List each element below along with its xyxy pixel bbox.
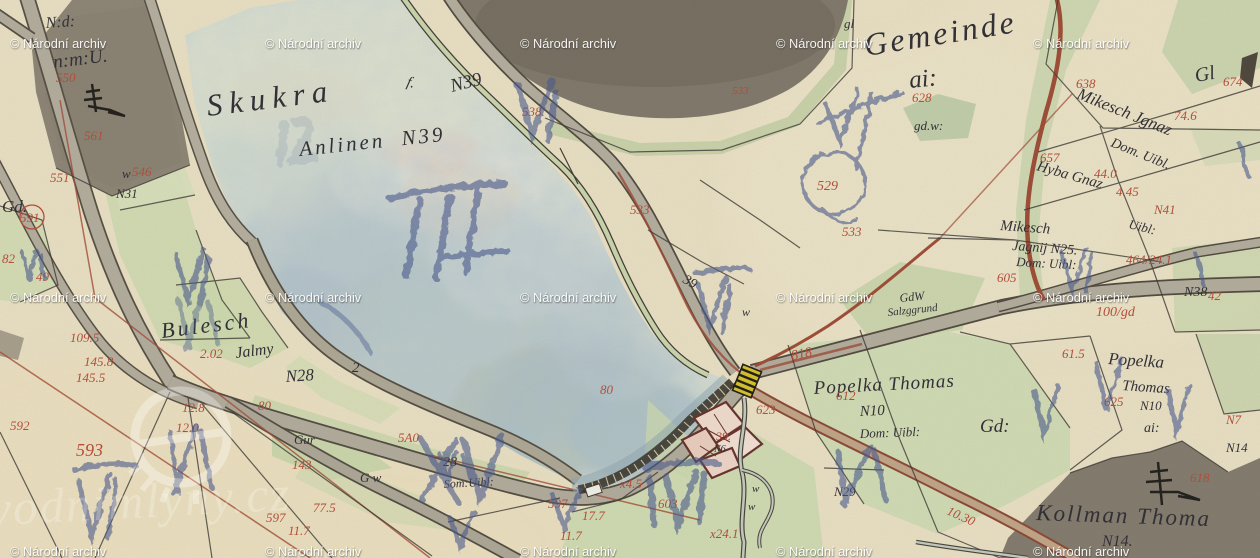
svg-text:© Národní archiv: © Národní archiv (776, 36, 873, 51)
svg-text:© Národní archiv: © Národní archiv (1033, 544, 1130, 558)
svg-text:© Národní archiv: © Národní archiv (265, 290, 362, 305)
svg-text:© Národní archiv: © Národní archiv (520, 290, 617, 305)
svg-text:© Národní archiv: © Národní archiv (10, 544, 107, 558)
svg-text:© Národní archiv: © Národní archiv (776, 290, 873, 305)
svg-text:© Národní archiv: © Národní archiv (776, 544, 873, 558)
svg-text:© Národní archiv: © Národní archiv (520, 36, 617, 51)
svg-text:© Národní archiv: © Národní archiv (520, 544, 617, 558)
svg-text:© Národní archiv: © Národní archiv (265, 544, 362, 558)
svg-text:© Národní archiv: © Národní archiv (10, 36, 107, 51)
svg-text:© Národní archiv: © Národní archiv (1033, 36, 1130, 51)
svg-text:© Národní archiv: © Národní archiv (265, 36, 362, 51)
svg-text:© Národní archiv: © Národní archiv (1033, 290, 1130, 305)
svg-text:© Národní archiv: © Národní archiv (10, 290, 107, 305)
